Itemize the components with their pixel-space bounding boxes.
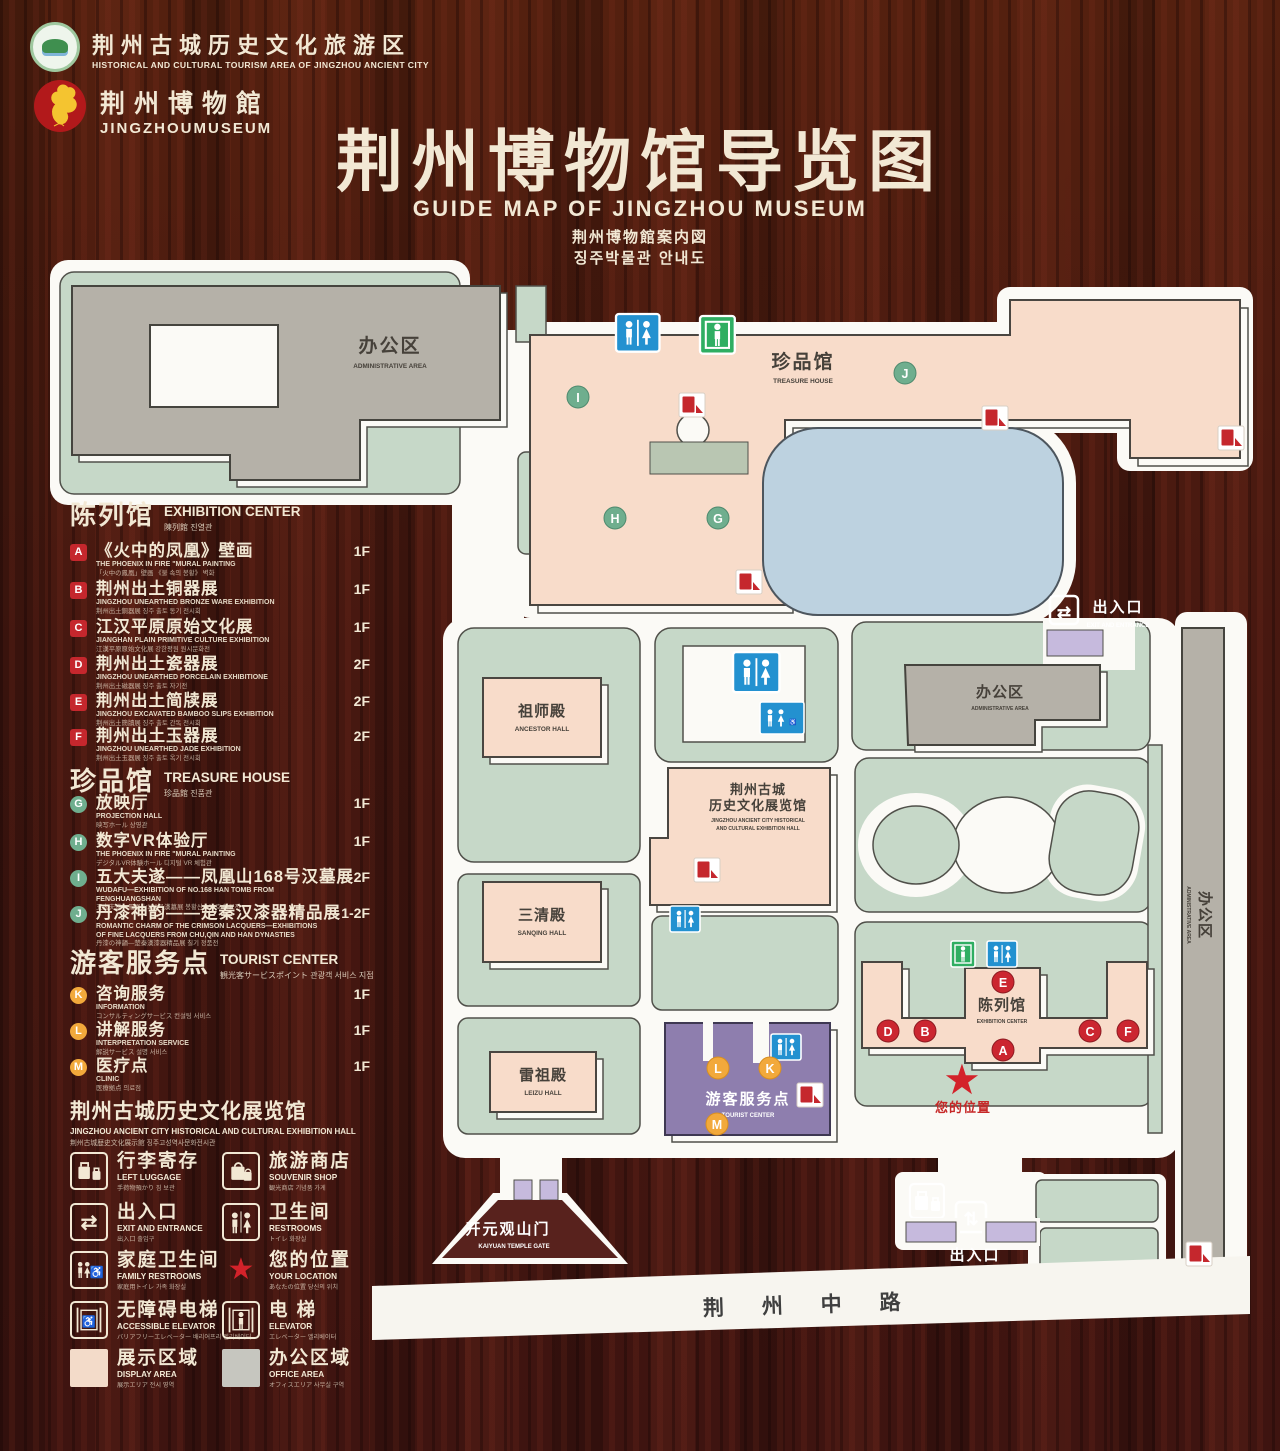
office-area-swatch <box>222 1349 260 1387</box>
legend-elevator: 电 梯ELEVATORエレベーター 엘리베이터 <box>222 1301 336 1341</box>
restroom-icon <box>670 906 700 932</box>
elevator-marker-icon <box>694 858 720 882</box>
treasure-pond <box>763 428 1063 615</box>
svg-text:办公区: 办公区 <box>976 683 1024 701</box>
marker-badge: K <box>70 987 87 1004</box>
svg-text:三清殿: 三清殿 <box>518 906 566 924</box>
list-item: H 数字VR体验厅THE PHOENIX IN FIRE "MURAL PAIN… <box>70 833 370 867</box>
tourism-area-title: 荆州古城历史文化旅游区 <box>92 28 429 60</box>
marker-badge: E <box>70 694 87 711</box>
svg-text:ADMINISTRATIVE AREA: ADMINISTRATIVE AREA <box>971 706 1029 712</box>
museum-logo-subtitle: JINGZHOUMUSEUM <box>100 120 272 137</box>
restroom-icon <box>771 1034 801 1060</box>
restroom-icon <box>733 652 780 692</box>
floor-label: 1F <box>354 543 370 559</box>
tourism-logo-icon <box>30 22 80 72</box>
marker-badge: H <box>70 834 87 851</box>
elevator-icon <box>222 1301 260 1339</box>
elevator-marker-icon <box>736 570 762 594</box>
svg-text:B: B <box>920 1025 929 1039</box>
list-item: K 咨询服务INFORMATIONコンサルティングサービス 컨설팅 서비스 1F <box>70 986 370 1020</box>
svg-text:出入口: 出入口 <box>1092 598 1143 616</box>
museum-logo-title: 荆州博物館 <box>100 84 272 120</box>
svg-text:A: A <box>998 1044 1007 1058</box>
marker-badge: F <box>70 729 87 746</box>
svg-text:★: ★ <box>943 1056 981 1103</box>
elevator-marker-icon <box>679 393 705 417</box>
list-item: J 丹漆神韵——楚秦汉漆器精品展ROMANTIC CHARM OF THE CR… <box>70 905 370 947</box>
svg-text:M: M <box>712 1118 722 1132</box>
marker-badge: B <box>70 582 87 599</box>
leizu-hall: 雷祖殿 LEIZU HALL <box>490 1052 603 1119</box>
svg-text:J: J <box>902 367 909 381</box>
restroom-icon <box>222 1203 260 1241</box>
marker-badge: C <box>70 620 87 637</box>
list-item: D 荆州出土瓷器展JINGZHOU UNEARTHED PORCELAIN EX… <box>70 656 370 690</box>
restroom-icon <box>616 314 660 352</box>
list-item: C 江汉平原原始文化展JIANGHAN PLAIN PRIMITIVE CULT… <box>70 619 370 653</box>
ancient-city-hall-title: 荆州古城历史文化展览馆 JINGZHOU ANCIENT CITY HISTOR… <box>70 1094 430 1147</box>
list-item: M 医疗点CLINIC医療拠点 의료점 1F <box>70 1058 370 1092</box>
svg-text:陈列馆: 陈列馆 <box>978 996 1026 1014</box>
legend-display-area: 展示区域DISPLAY AREA展示エリア 전시 영역 <box>70 1349 199 1389</box>
legend-souvenir-shop: 旅游商店SOUVENIR SHOP観光商店 기념품 가게 <box>222 1152 351 1192</box>
tourism-area-subtitle: HISTORICAL AND CULTURAL TOURISM AREA OF … <box>92 60 429 70</box>
marker-badge: M <box>70 1059 87 1076</box>
legend-left-luggage: 行李寄存LEFT LUGGAGE手荷物預かり 짐 보관 <box>70 1152 199 1192</box>
svg-text:G: G <box>713 512 723 526</box>
svg-text:TOURIST CENTER: TOURIST CENTER <box>722 1113 775 1119</box>
elevator-marker-icon <box>1186 1242 1212 1266</box>
elevator-icon <box>951 941 975 967</box>
left-luggage-icon <box>70 1152 108 1190</box>
svg-text:历史文化展览馆: 历史文化展览馆 <box>709 798 807 813</box>
svg-text:您的位置: 您的位置 <box>935 1100 991 1115</box>
page-title-en: GUIDE MAP OF JINGZHOU MUSEUM <box>413 196 868 222</box>
elevator-marker-icon <box>1218 426 1244 450</box>
legend-restrooms: 卫生间RESTROOMSトイレ 화장실 <box>222 1203 331 1243</box>
elevator-icon <box>700 316 735 354</box>
svg-text:I: I <box>576 391 579 405</box>
page-title-ko: 징주박물관 안내도 <box>574 247 707 268</box>
svg-text:TREASURE HOUSE: TREASURE HOUSE <box>773 378 833 385</box>
phoenix-icon <box>34 80 86 132</box>
exit-arrows-icon: ⇄ <box>70 1203 108 1241</box>
star-icon: ★ <box>222 1251 260 1289</box>
accessible-elevator-icon: ♿ <box>70 1301 108 1339</box>
museum-logo <box>34 80 86 132</box>
legend-family-restrooms: ♿ 家庭卫生间FAMILY RESTROOMS家庭用トイレ 가족 화장실 <box>70 1251 220 1291</box>
svg-text:♿: ♿ <box>789 718 797 726</box>
svg-text:荆州古城: 荆州古城 <box>730 782 786 797</box>
svg-text:K: K <box>765 1062 774 1076</box>
family-restroom-icon: ♿ <box>760 702 804 734</box>
east-gate-block <box>1043 626 1107 660</box>
svg-text:ANCESTOR HALL: ANCESTOR HALL <box>515 726 570 733</box>
garden <box>858 779 1151 908</box>
svg-text:雷祖殿: 雷祖殿 <box>519 1066 567 1084</box>
page-title: 荆州博物馆导览图 <box>336 108 944 205</box>
svg-text:祖师殿: 祖师殿 <box>517 702 566 720</box>
marker-badge: L <box>70 1023 87 1040</box>
section-exhibition-center: 陈列馆 EXHIBITION CENTER陳列館 진열관 <box>70 502 301 533</box>
svg-text:LEIZU HALL: LEIZU HALL <box>524 1090 561 1097</box>
legend-exit-entrance: ⇄ 出入口EXIT AND ENTRANCE出入口 출입구 <box>70 1203 203 1243</box>
elevator-marker-icon <box>982 406 1008 430</box>
svg-text:E: E <box>999 976 1007 990</box>
svg-text:KAIYUAN TEMPLE GATE: KAIYUAN TEMPLE GATE <box>478 1244 549 1250</box>
list-item: A 《火中的凤凰》壁画THE PHOENIX IN FIRE "MURAL PA… <box>70 543 370 577</box>
restroom-building: ♿ <box>683 646 805 742</box>
svg-text:D: D <box>883 1025 892 1039</box>
list-item: B 荆州出土铜器展JINGZHOU UNEARTHED BRONZE WARE … <box>70 581 370 615</box>
svg-text:♿: ♿ <box>90 1265 104 1279</box>
svg-text:ADMINISTRATIVE AREA: ADMINISTRATIVE AREA <box>353 363 427 370</box>
marker-badge: G <box>70 796 87 813</box>
ancient-city-hall: 荆州古城 历史文化展览馆 JINGZHOU ANCIENT CITY HISTO… <box>650 768 837 932</box>
legend-your-location: ★ 您的位置YOUR LOCATIONあなたの位置 당신의 위치 <box>222 1251 351 1291</box>
garden-pond <box>953 797 1061 893</box>
svg-text:C: C <box>1085 1025 1094 1039</box>
page-title-ja: 荆州博物館案内図 <box>572 226 708 247</box>
svg-text:办公区: 办公区 <box>1196 891 1214 939</box>
road: 荆 州 中 路 <box>372 1256 1250 1340</box>
svg-text:H: H <box>610 512 619 526</box>
svg-text:F: F <box>1124 1025 1132 1039</box>
svg-text:ADMINISTRATIVE AREA: ADMINISTRATIVE AREA <box>1185 886 1191 944</box>
office-strip-east: 办公区 ADMINISTRATIVE AREA <box>1182 628 1224 1284</box>
tourist-center-building: 游客服务点 TOURIST CENTER <box>665 1021 837 1142</box>
list-item: E 荆州出土简牍展JINGZHOU EXCAVATED BAMBOO SLIPS… <box>70 693 370 727</box>
ancestor-hall: 祖师殿 ANCESTOR HALL <box>483 678 608 764</box>
exit-arrows-icon: ⇅ <box>963 1209 978 1229</box>
display-area-swatch <box>70 1349 108 1387</box>
svg-text:L: L <box>714 1062 722 1076</box>
svg-text:AND CULTURAL EXHIBITION HALL: AND CULTURAL EXHIBITION HALL <box>716 826 800 832</box>
exit-arrows-icon: ⇄ <box>1057 603 1071 622</box>
elevator-marker-icon <box>797 1083 823 1107</box>
svg-text:SANQING HALL: SANQING HALL <box>518 930 567 937</box>
restroom-icon <box>987 941 1017 967</box>
shopping-bag-icon <box>222 1152 260 1190</box>
east-entrance: ⇄ 出入口 EXIT AND ENTRANCE <box>1050 596 1149 629</box>
family-restroom-icon: ♿ <box>70 1251 108 1289</box>
list-item: G 放映厅PROJECTION HALL映写ホール 상영관 1F <box>70 795 370 829</box>
svg-text:EXHIBITION CENTER: EXHIBITION CENTER <box>977 1019 1028 1025</box>
legend-office-area: 办公区域OFFICE AREAオフィスエリア 사무실 구역 <box>222 1349 351 1389</box>
section-tourist-center: 游客服务点 TOURIST CENTER観光客サービスポイント 관광객 서비스 … <box>70 950 374 981</box>
treasure-label: 珍品馆 <box>771 350 834 373</box>
svg-text:♿: ♿ <box>82 1314 96 1328</box>
svg-text:游客服务点: 游客服务点 <box>705 1090 790 1108</box>
marker-badge: A <box>70 544 87 561</box>
marker-badge: D <box>70 657 87 674</box>
svg-text:开元观山门: 开元观山门 <box>465 1220 550 1238</box>
tourism-logo <box>30 22 80 72</box>
sanqing-hall: 三清殿 SANQING HALL <box>483 882 608 969</box>
list-item: L 讲解服务INTERPRETATION SERVICE解説サービス 설명 서비… <box>70 1022 370 1056</box>
list-item: F 荆州出土玉器展JINGZHOU UNEARTHED JADE EXHIBIT… <box>70 728 370 762</box>
svg-text:出入口: 出入口 <box>949 1246 1000 1264</box>
svg-text:EXIT AND ENTRANCE: EXIT AND ENTRANCE <box>1087 623 1150 629</box>
kaiyuan-gate: 开元观山门 KAIYUAN TEMPLE GATE <box>442 1178 618 1258</box>
marker-badge: I <box>70 870 87 887</box>
marker-badge: J <box>70 906 87 923</box>
office-nw-label: 办公区 <box>358 334 421 357</box>
svg-text:JINGZHOU ANCIENT CITY HISTORIC: JINGZHOU ANCIENT CITY HISTORICAL <box>711 818 805 824</box>
